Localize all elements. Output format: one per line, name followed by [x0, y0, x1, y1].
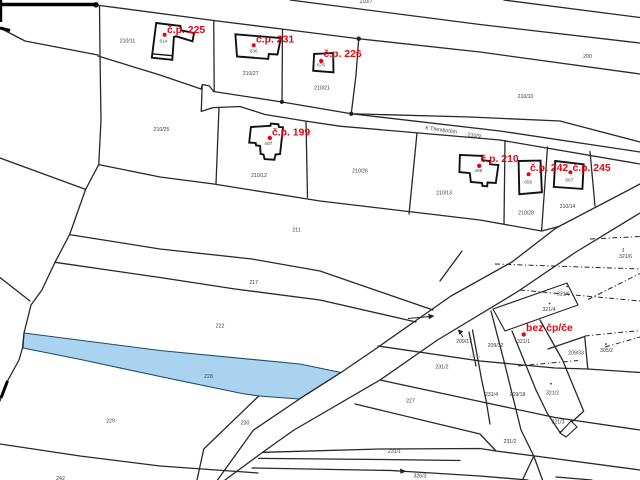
svg-text:326/3: 326/3: [414, 474, 427, 480]
svg-text:636: 636: [250, 49, 258, 55]
svg-text:210/7: 210/7: [360, 0, 373, 5]
svg-text:305/2: 305/2: [600, 348, 613, 354]
svg-text:231/4: 231/4: [485, 392, 498, 398]
svg-text:209/33: 209/33: [568, 351, 584, 357]
svg-text:210/25: 210/25: [154, 127, 170, 133]
svg-text:231/1: 231/1: [388, 449, 401, 455]
svg-text:200: 200: [583, 54, 592, 60]
svg-text:222: 222: [216, 324, 225, 330]
svg-text:210/11: 210/11: [120, 39, 136, 45]
svg-text:498: 498: [474, 168, 482, 174]
svg-text:č.p. 199: č.p. 199: [272, 127, 310, 138]
svg-text:227: 227: [406, 399, 415, 405]
svg-text:211: 211: [292, 228, 300, 234]
svg-text:209/18: 209/18: [510, 392, 526, 398]
svg-text:bez čp/če: bez čp/če: [526, 323, 573, 334]
svg-text:210/28: 210/28: [518, 211, 534, 217]
svg-text:J: J: [622, 248, 625, 254]
svg-text:217: 217: [249, 280, 258, 286]
svg-text:č.p. 242: č.p. 242: [530, 163, 568, 174]
svg-text:209/17: 209/17: [456, 339, 472, 345]
svg-text:210/21: 210/21: [314, 86, 330, 92]
svg-text:656: 656: [524, 179, 532, 185]
svg-text:487: 487: [264, 141, 272, 147]
svg-text:č.p. 245: č.p. 245: [573, 163, 611, 174]
svg-text:321/1: 321/1: [517, 339, 530, 345]
svg-text:210/14: 210/14: [560, 204, 576, 210]
svg-text:č.p. 231: č.p. 231: [256, 35, 294, 46]
svg-text:321/2: 321/2: [546, 391, 559, 397]
svg-text:(1111): (1111): [470, 354, 481, 358]
svg-text:231/2: 231/2: [436, 365, 449, 371]
svg-text:210/13: 210/13: [436, 191, 452, 197]
svg-text:321/6: 321/6: [557, 292, 570, 298]
svg-text:210/26: 210/26: [352, 169, 368, 175]
svg-text:210/10: 210/10: [518, 94, 534, 100]
svg-text:210/12: 210/12: [251, 173, 267, 179]
svg-text:229: 229: [106, 419, 115, 425]
svg-text:231/2: 231/2: [504, 439, 517, 445]
svg-text:667: 667: [565, 177, 573, 183]
svg-text:676: 676: [317, 63, 325, 69]
svg-text:210/27: 210/27: [243, 71, 259, 77]
svg-text:č.p. 225: č.p. 225: [167, 25, 205, 36]
svg-text:č.p. 210: č.p. 210: [481, 154, 519, 165]
svg-text:321/6: 321/6: [619, 254, 632, 260]
svg-text:230: 230: [241, 421, 250, 427]
svg-text:209/32: 209/32: [488, 343, 504, 349]
svg-text:228: 228: [204, 374, 213, 380]
svg-text:614: 614: [159, 39, 167, 45]
svg-text:321/3: 321/3: [552, 420, 565, 426]
svg-text:242: 242: [56, 476, 65, 480]
svg-text:321/4: 321/4: [543, 307, 556, 313]
svg-text:č.p. 226: č.p. 226: [324, 49, 362, 60]
